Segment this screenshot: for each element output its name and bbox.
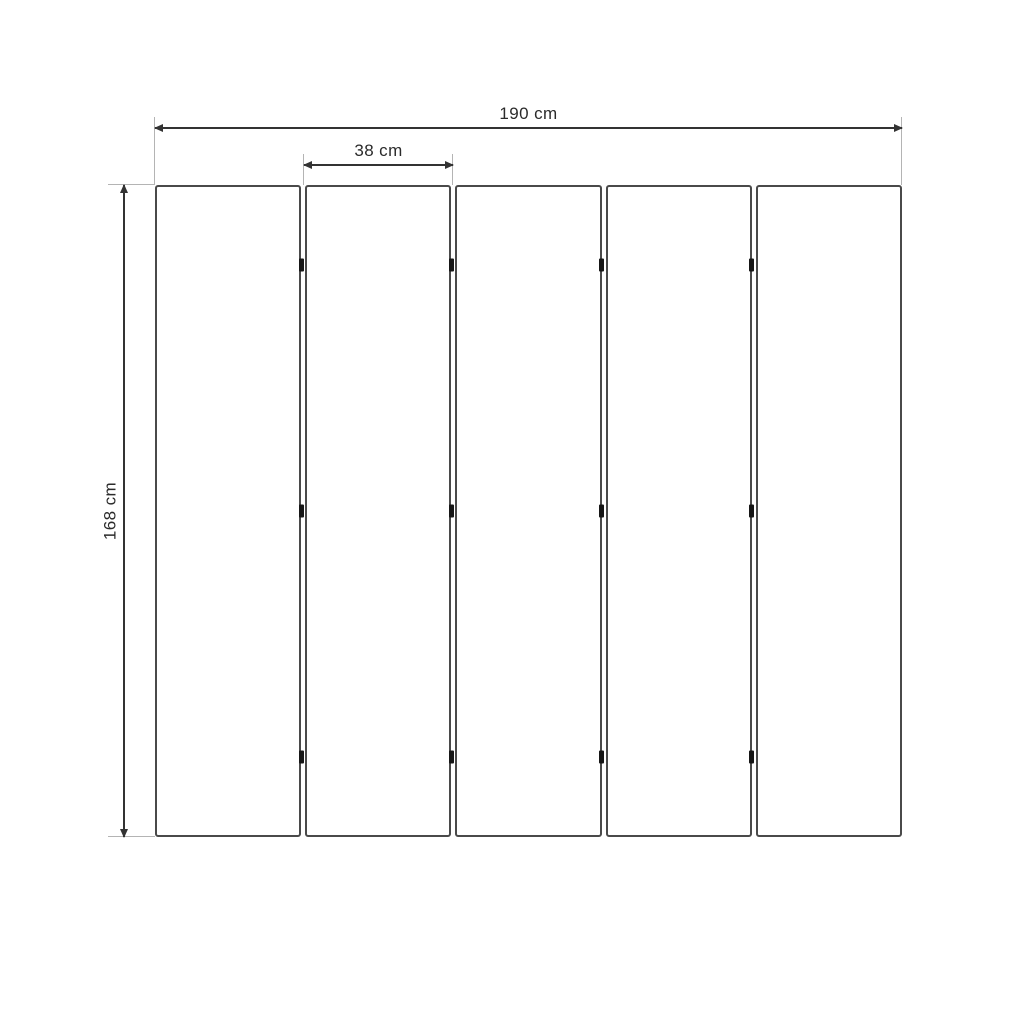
hinge	[749, 258, 754, 271]
arrow-right-icon	[894, 124, 903, 132]
hinge	[749, 505, 754, 518]
hinge	[299, 751, 304, 764]
arrow-down-icon	[120, 829, 128, 838]
hinge	[449, 258, 454, 271]
hinge	[599, 505, 604, 518]
panel	[756, 185, 902, 837]
hinge	[299, 258, 304, 271]
hinge	[599, 751, 604, 764]
hinge	[449, 751, 454, 764]
dimension-label-total-height: 168 cm	[102, 482, 119, 540]
extension-line	[303, 154, 304, 185]
dimension-panel-width: 38 cm	[304, 164, 453, 166]
extension-line	[108, 836, 155, 837]
arrow-right-icon	[445, 161, 454, 169]
arrow-left-icon	[303, 161, 312, 169]
arrow-up-icon	[120, 184, 128, 193]
panel	[606, 185, 752, 837]
dimension-label-panel-width: 38 cm	[354, 142, 402, 159]
hinge	[299, 505, 304, 518]
hinge	[749, 751, 754, 764]
folding-screen-dimension-drawing: 190 cm 38 cm 168 cm	[0, 0, 1024, 1024]
panel	[305, 185, 451, 837]
arrow-left-icon	[154, 124, 163, 132]
extension-line	[108, 184, 155, 185]
hinge	[449, 505, 454, 518]
extension-line	[452, 154, 453, 185]
dimension-total-width: 190 cm	[155, 127, 902, 129]
dimension-total-height: 168 cm	[123, 185, 125, 837]
panel	[155, 185, 301, 837]
dimension-label-total-width: 190 cm	[499, 105, 557, 122]
hinge	[599, 258, 604, 271]
panel	[455, 185, 601, 837]
panel-row	[155, 185, 902, 837]
